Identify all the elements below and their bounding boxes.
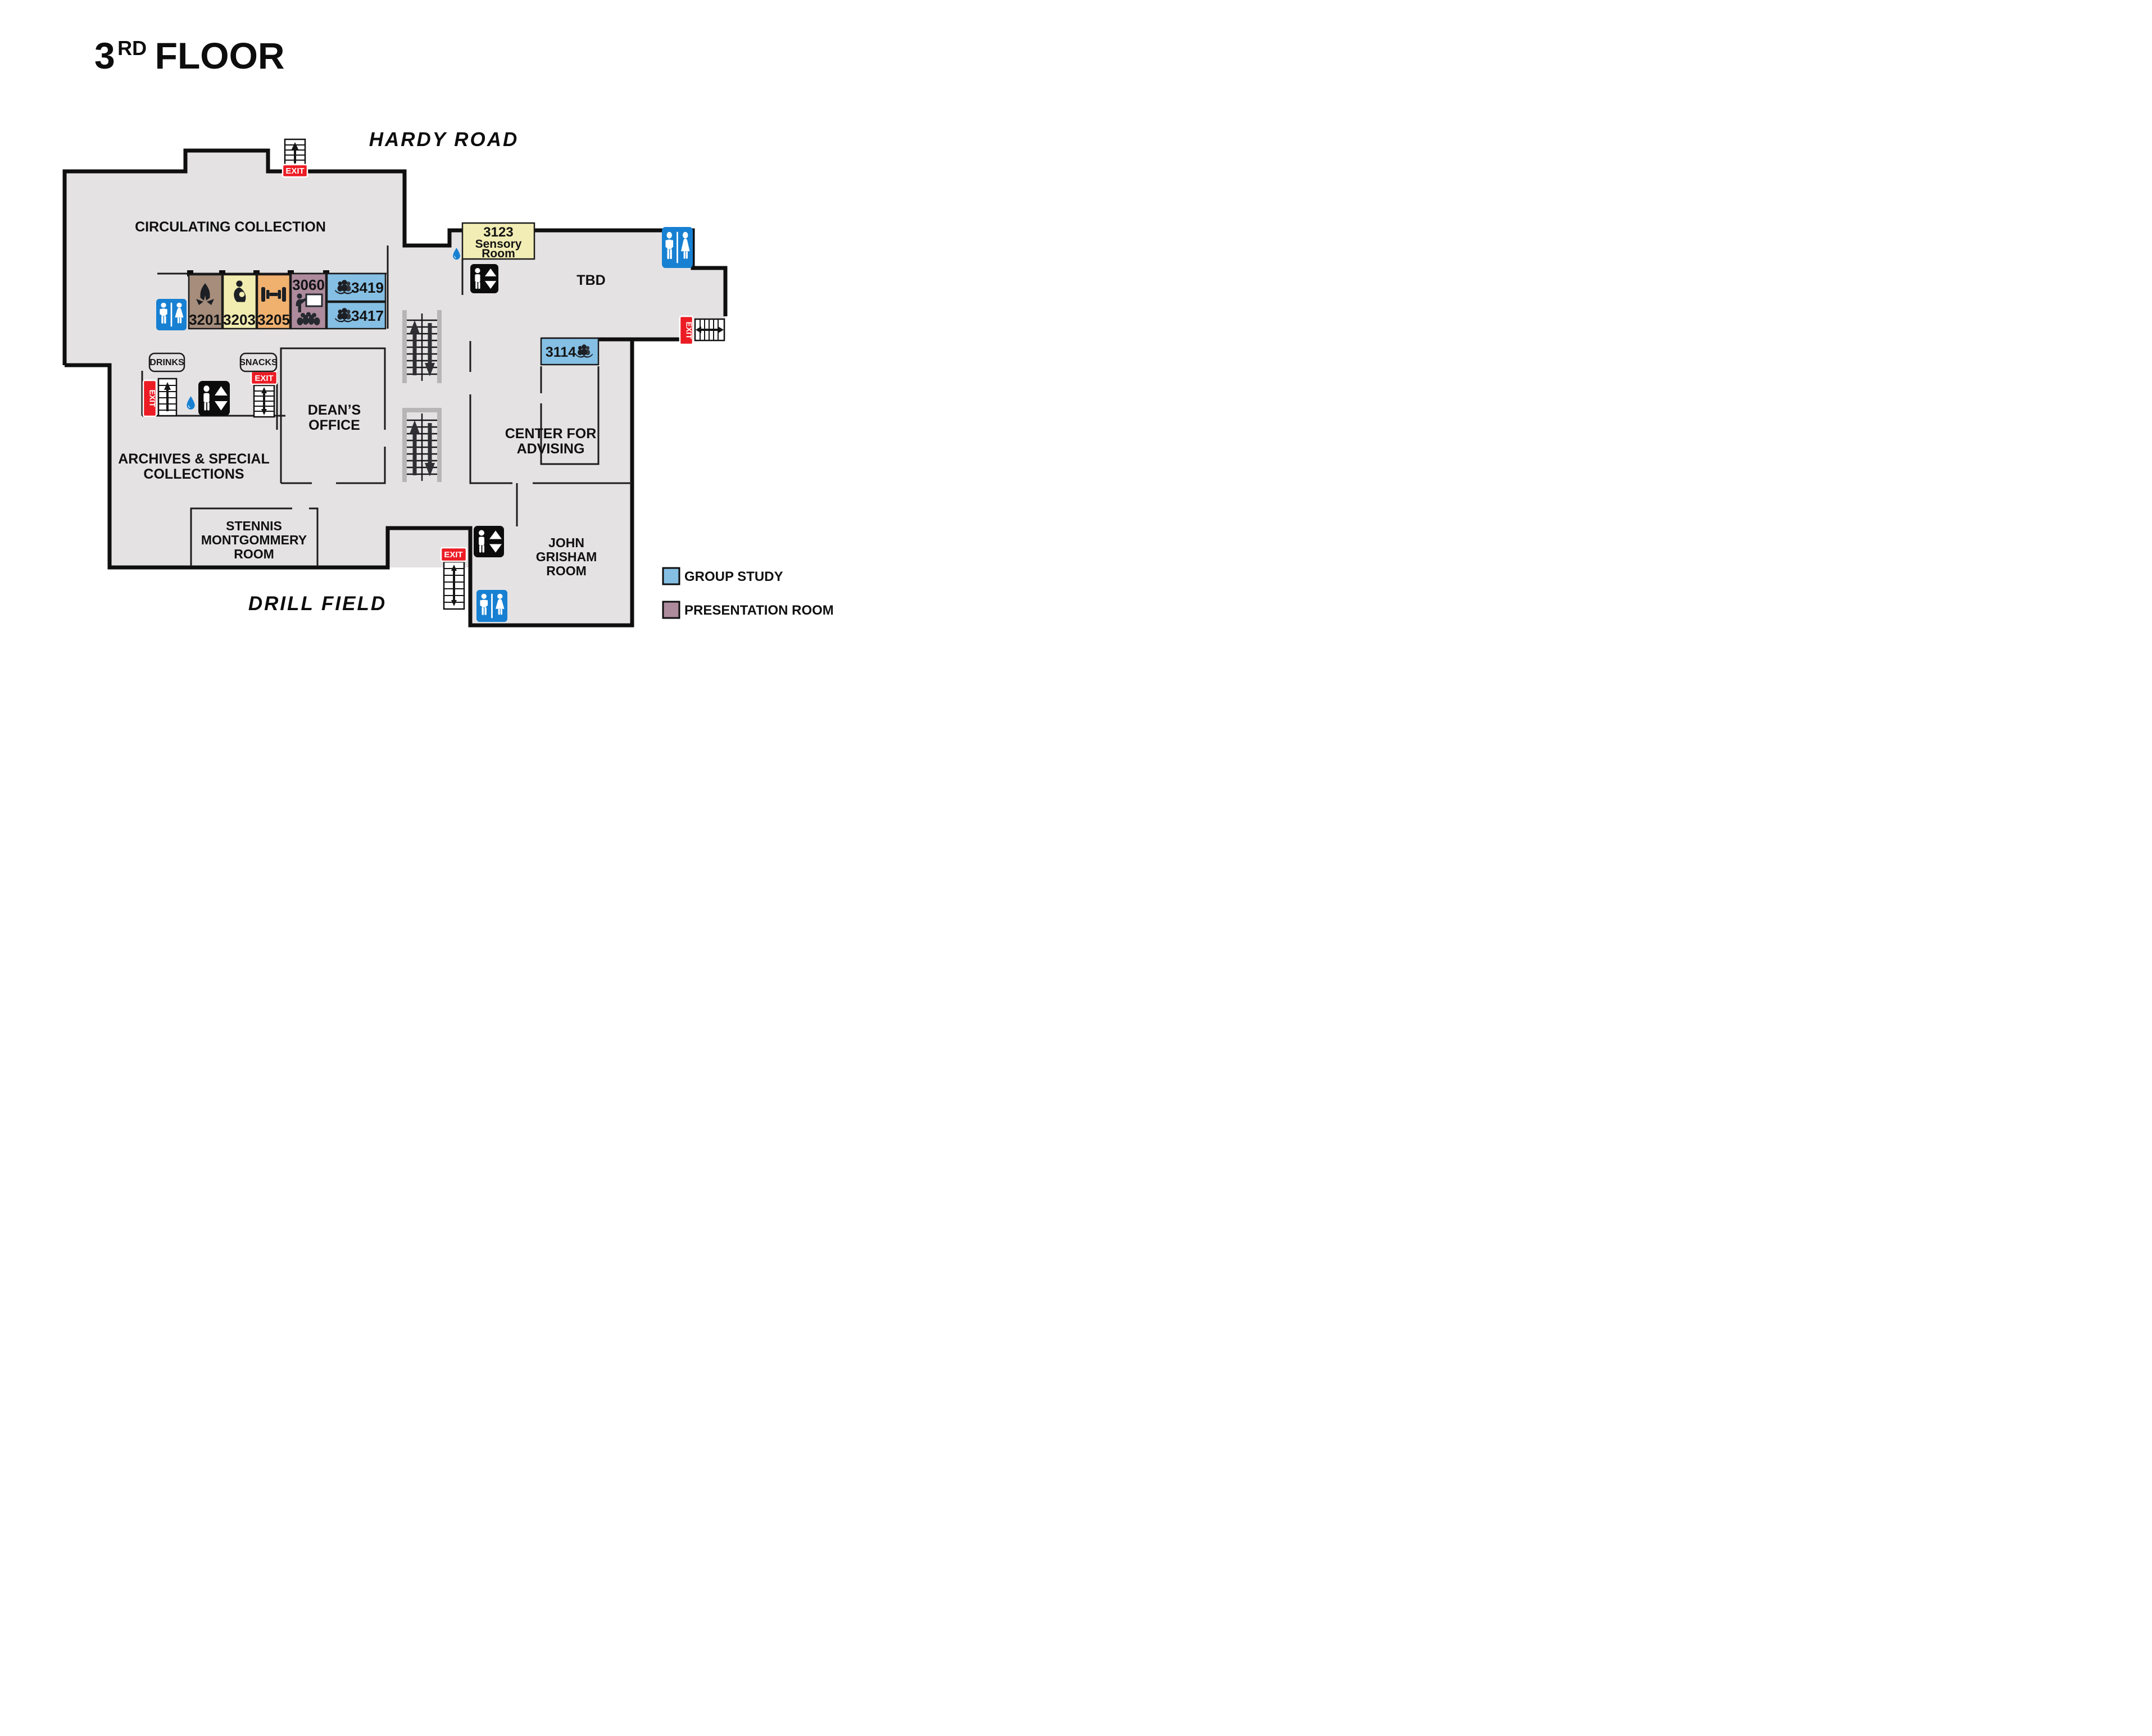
room-3205: 3205: [257, 275, 290, 329]
exit-label: EXIT: [285, 166, 304, 176]
area-grisham-line3: ROOM: [546, 563, 587, 578]
area-archives-line1: ARCHIVES & SPECIAL: [118, 451, 269, 467]
elevator-icon-west: [198, 381, 230, 416]
drinks-station: DRINKS: [149, 353, 184, 371]
room-number: 3114: [546, 344, 576, 360]
exit-south: EXIT: [441, 548, 466, 609]
snacks-label: SNACKS: [239, 358, 278, 367]
room-number: 3419: [351, 279, 384, 296]
exit-label: EXIT: [685, 321, 694, 339]
street-label-drill-field: DRILL FIELD: [248, 593, 387, 615]
legend-label-group-study: GROUP STUDY: [684, 569, 783, 584]
exit-west: EXIT: [143, 379, 176, 416]
area-stennis-line3: ROOM: [234, 547, 274, 561]
exit-label: EXIT: [255, 374, 273, 383]
legend-label-presentation-room: PRESENTATION ROOM: [684, 603, 834, 618]
exit-snacks: EXIT: [251, 371, 277, 417]
street-label-hardy-road: HARDY ROAD: [369, 129, 519, 151]
room-3203: 3203: [223, 275, 256, 329]
area-stennis-line1: STENNIS: [226, 519, 282, 533]
page-title: 3 RD FLOOR: [94, 35, 285, 76]
title-number: 3: [94, 35, 115, 76]
room-3201: 3201: [189, 275, 222, 329]
restroom-icon-south: [476, 590, 507, 622]
room-3419: 3419: [327, 274, 385, 301]
area-advising-line1: CENTER FOR: [505, 426, 597, 442]
area-grisham-line1: JOHN: [548, 535, 584, 550]
exit-east: EXIT: [680, 316, 724, 344]
area-tbd: TBD: [576, 272, 605, 288]
restroom-icon-west: [156, 299, 187, 330]
room-number: 3060: [292, 276, 325, 293]
title-word: FLOOR: [155, 35, 285, 76]
room-number: 3201: [189, 311, 221, 328]
elevator-icon-south: [474, 526, 504, 557]
room-name-line2: Room: [482, 247, 515, 260]
exit-label: EXIT: [444, 550, 462, 560]
floor-plan-map: 3 RD FLOOR HARDY ROAD DRILL FIELD CIRCUL…: [0, 0, 868, 700]
room-number: 3205: [257, 311, 290, 328]
snacks-station: SNACKS: [239, 353, 278, 371]
drinks-label: DRINKS: [149, 358, 184, 367]
legend-swatch-presentation-room: [663, 602, 679, 618]
area-stennis-line2: MONTGOMMERY: [201, 533, 307, 547]
exit-label: EXIT: [148, 389, 157, 407]
room-number: 3203: [223, 311, 256, 328]
area-deans-office-line1: DEAN’S: [308, 402, 361, 418]
room-3417: 3417: [327, 302, 385, 329]
legend: GROUP STUDY PRESENTATION ROOM: [663, 568, 834, 618]
room-number: 3417: [351, 307, 384, 324]
legend-swatch-group-study: [663, 568, 679, 584]
room-3060-presentation: 3060: [291, 274, 326, 329]
area-deans-office-line2: OFFICE: [308, 417, 360, 433]
area-archives-line2: COLLECTIONS: [143, 466, 244, 482]
floor-plan-page: 3 RD FLOOR HARDY ROAD DRILL FIELD CIRCUL…: [0, 0, 868, 700]
room-3114: 3114: [541, 338, 598, 365]
exit-north: EXIT: [283, 139, 307, 177]
area-advising-line2: ADVISING: [517, 441, 585, 457]
area-circulating-collection: CIRCULATING COLLECTION: [135, 219, 326, 235]
area-grisham-line2: GRISHAM: [536, 549, 597, 564]
restroom-icon-northeast: [662, 227, 693, 268]
title-ordinal: RD: [117, 37, 147, 60]
elevator-icon-north: [470, 264, 498, 293]
room-3123-sensory: 3123 Sensory Room: [462, 223, 534, 260]
